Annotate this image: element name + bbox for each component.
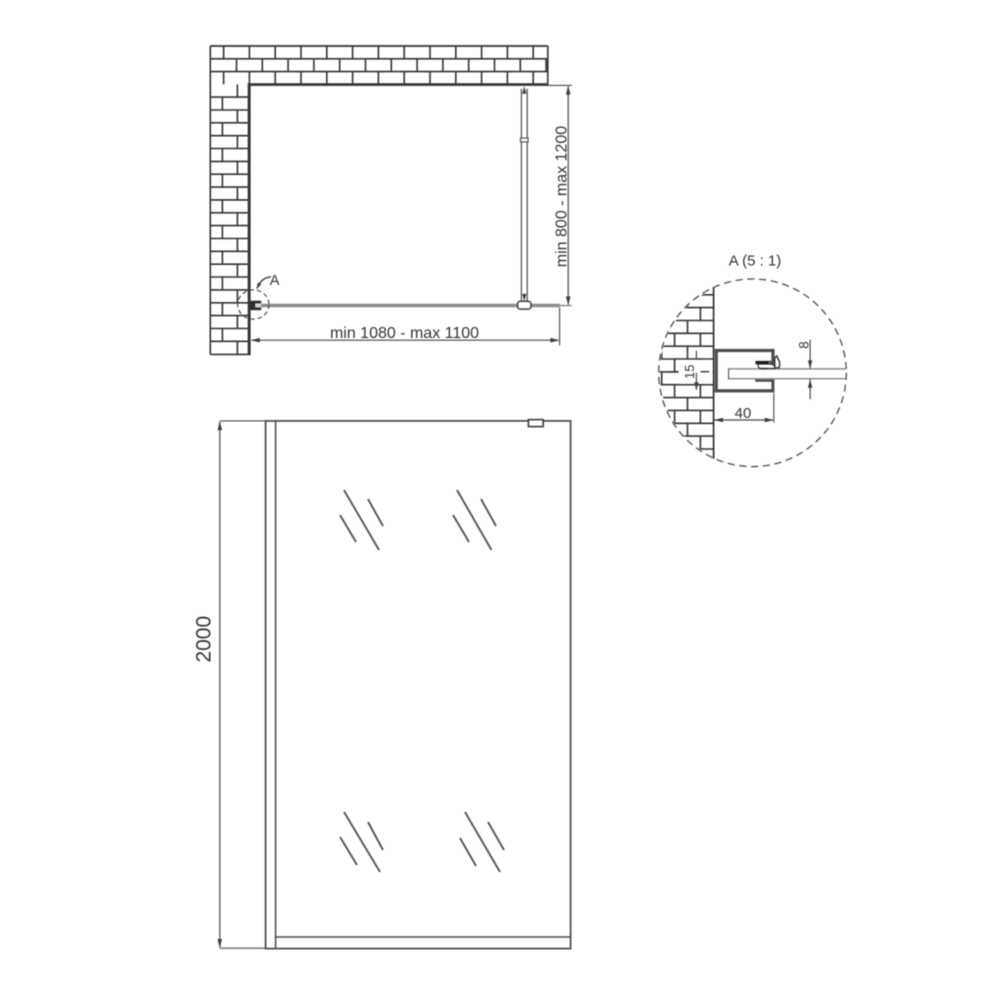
svg-text:40: 40 — [735, 405, 752, 422]
svg-text:min 1080 - max 1100: min 1080 - max 1100 — [330, 325, 479, 342]
svg-text:min 800 - max 1200: min 800 - max 1200 — [554, 126, 571, 268]
svg-text:A (5 : 1): A (5 : 1) — [729, 252, 782, 269]
svg-text:A: A — [270, 273, 280, 289]
svg-text:8: 8 — [797, 341, 812, 349]
svg-text:2000: 2000 — [193, 616, 216, 663]
svg-text:15: 15 — [682, 365, 697, 379]
